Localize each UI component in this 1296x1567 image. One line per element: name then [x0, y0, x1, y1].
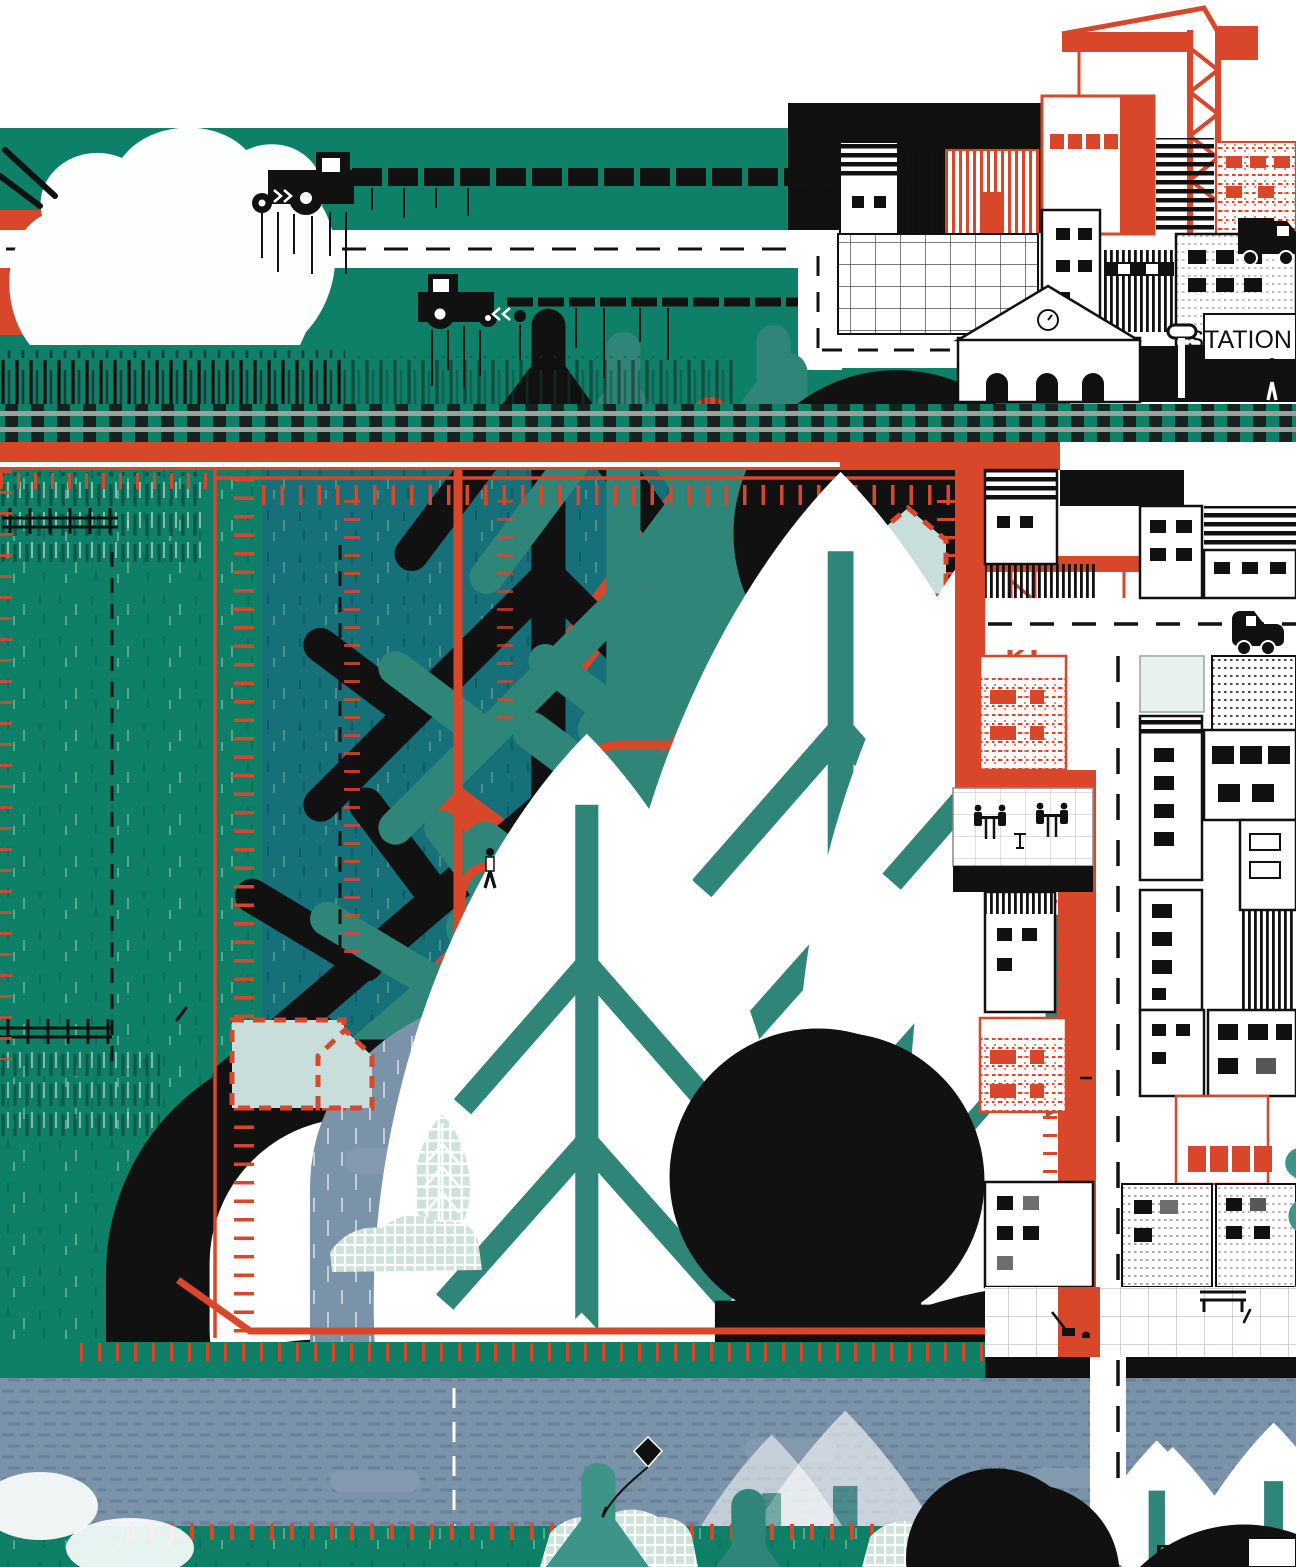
building-corner [1248, 1538, 1296, 1567]
station-sign-label: STATION [1187, 326, 1292, 354]
container [1158, 1546, 1242, 1567]
map-illustration: STATION [0, 0, 1296, 1567]
orange-dotted-building [980, 656, 1066, 770]
illustration-canvas: STATION [0, 0, 1296, 1567]
railway [0, 404, 1296, 442]
mower-icon [1062, 1328, 1075, 1336]
orange-dotted-building [980, 1018, 1066, 1112]
crop-field [0, 1048, 160, 1136]
boundary-band [0, 442, 1060, 470]
restaurant-icon [953, 788, 1093, 892]
tall-grass [0, 350, 345, 408]
